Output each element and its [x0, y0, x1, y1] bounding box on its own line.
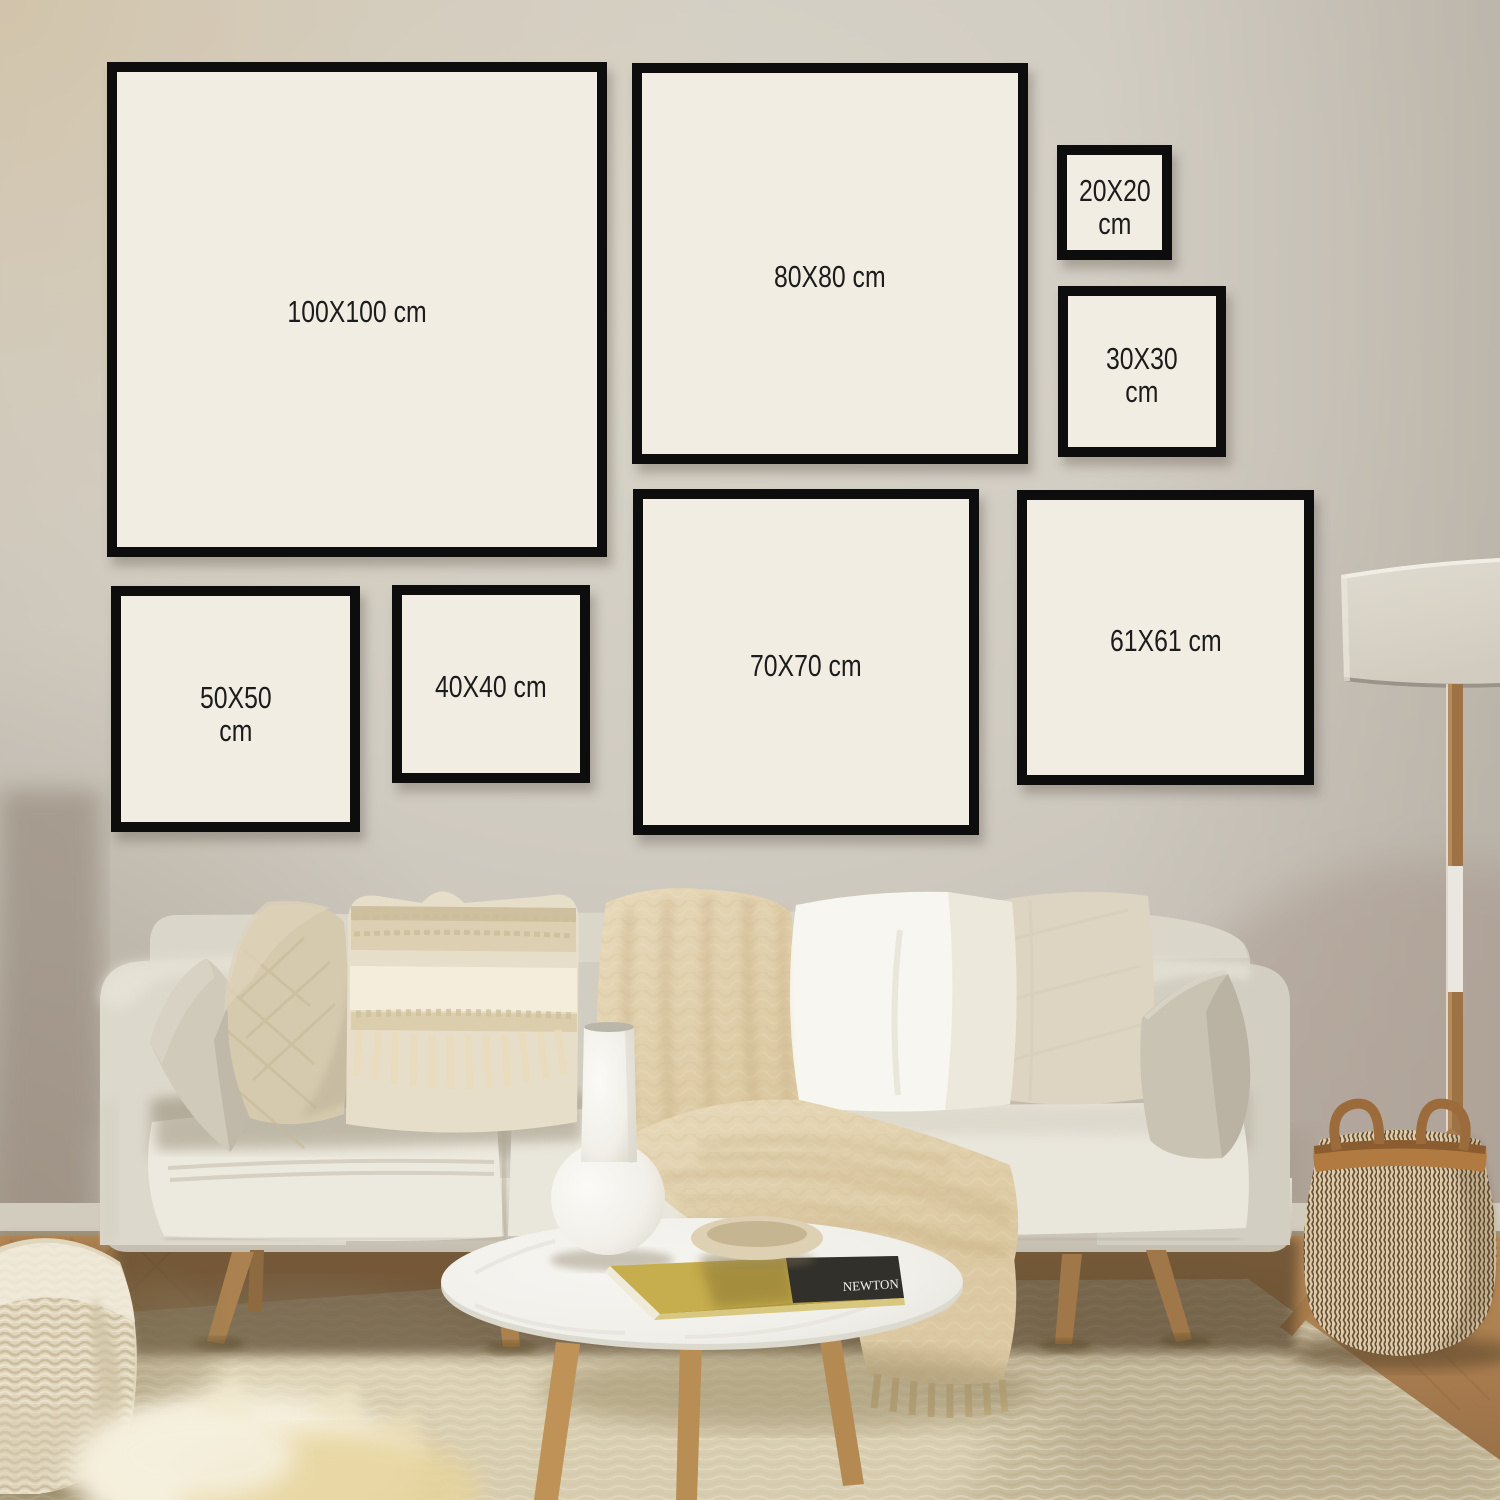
svg-text:NEWTON: NEWTON [842, 1276, 899, 1294]
